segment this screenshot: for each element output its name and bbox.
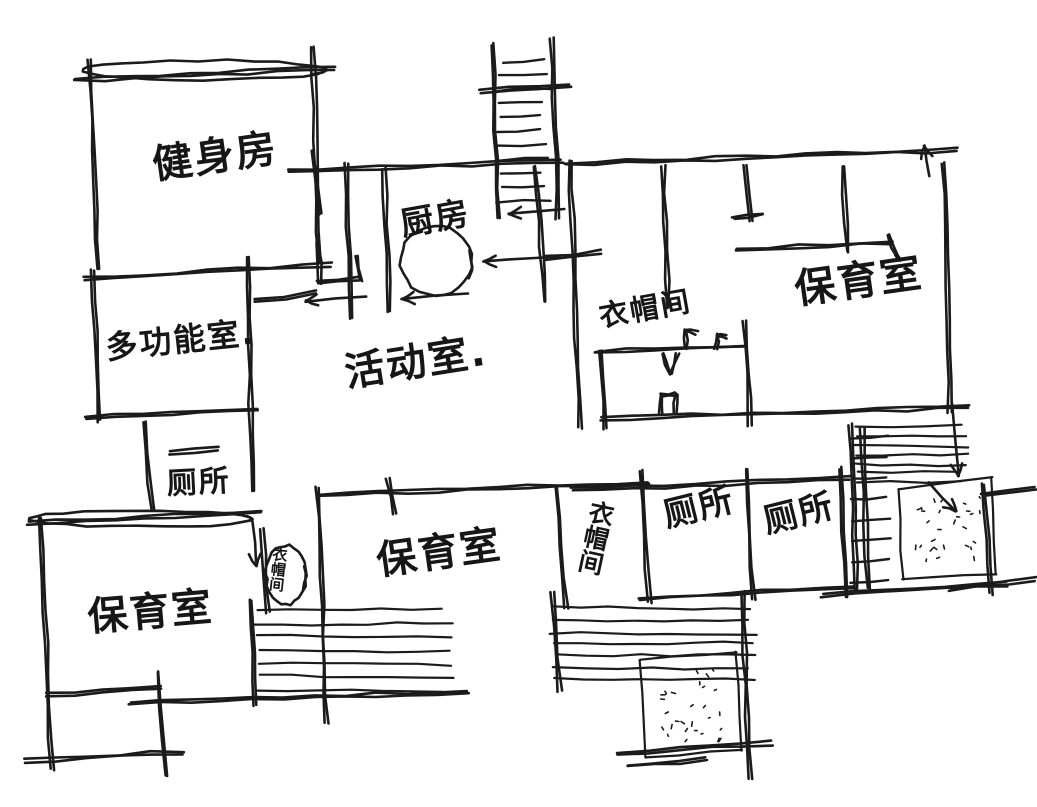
room-label-toilet-upper: 厕所 [166,467,232,501]
room-label-nursery-left: 保育室 [86,587,215,639]
sketch-canvas [0,0,1037,807]
floorplan-sketch: 健身房厨房保育室多功能室.活动室.厕所衣帽间衣帽间厕所厕所保育室保育室衣帽间 [0,0,1037,807]
room-label-cloakroom-small: 衣帽间 [267,546,287,592]
